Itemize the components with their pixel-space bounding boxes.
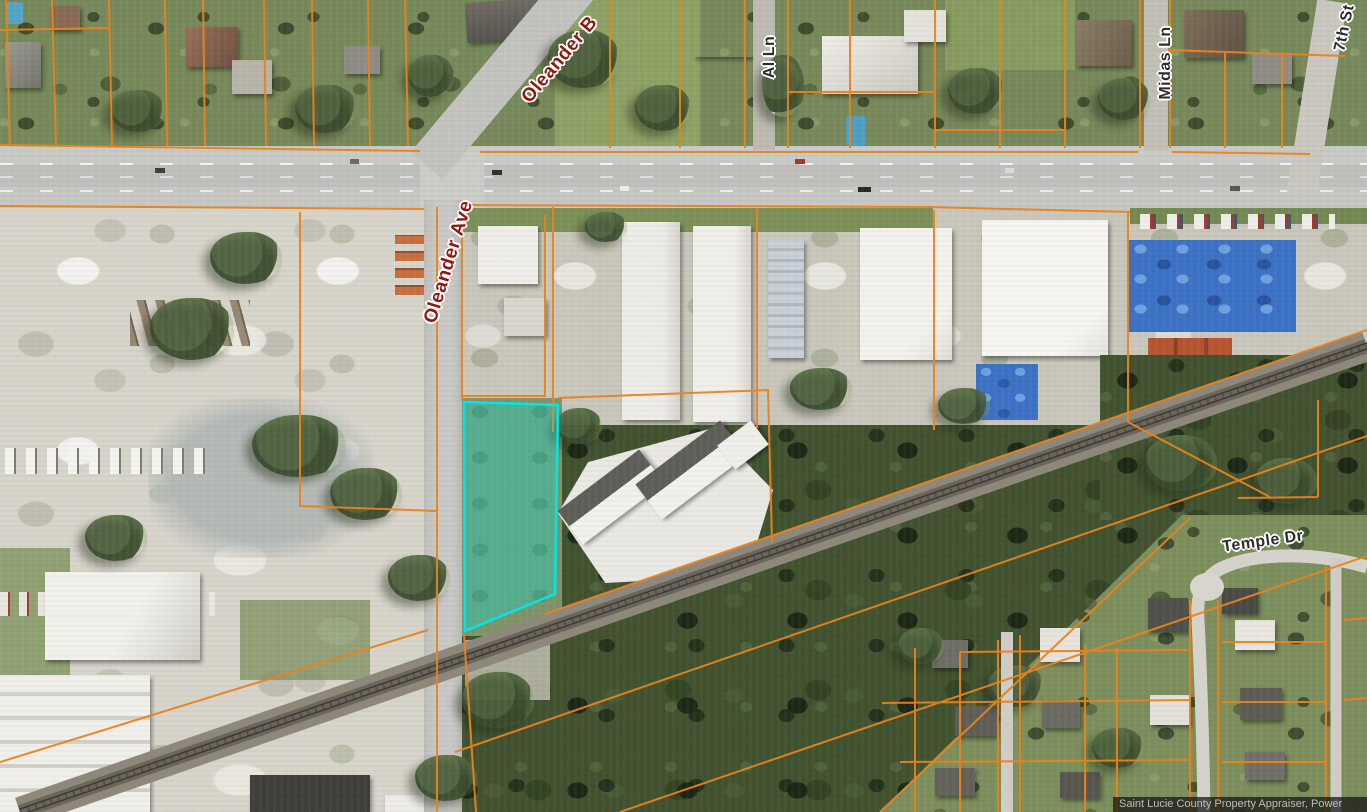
tree-cluster — [210, 232, 282, 284]
warehouse-building — [622, 222, 680, 420]
vehicle — [492, 170, 502, 175]
warehouse-building — [768, 240, 804, 358]
house — [186, 27, 238, 67]
tree-cluster — [408, 55, 454, 97]
tree-cluster — [938, 388, 990, 424]
tree-cluster — [415, 755, 477, 801]
vehicle — [155, 168, 165, 173]
vehicle — [350, 159, 359, 164]
street-label-midas-ln: Midas Ln — [1157, 26, 1175, 99]
house — [935, 768, 975, 796]
house — [1184, 10, 1244, 58]
house — [1076, 20, 1132, 66]
tree-cluster — [556, 408, 602, 444]
tree-cluster — [585, 212, 627, 242]
building — [250, 775, 370, 812]
map-attribution: Saint Lucie County Property Appraiser, P… — [1113, 797, 1367, 812]
tree-cluster — [635, 85, 691, 131]
house — [1042, 700, 1080, 728]
lane-marking — [0, 176, 1367, 178]
warehouse-building — [478, 226, 538, 284]
tree-cluster — [948, 68, 1004, 114]
vehicle — [620, 186, 629, 191]
tree-cluster — [150, 298, 234, 360]
building — [0, 675, 150, 812]
tree-cluster — [1092, 728, 1144, 768]
tree-cluster — [1255, 458, 1317, 504]
forest — [1100, 355, 1367, 520]
blue-pallet-stacks — [1128, 240, 1296, 332]
house — [344, 46, 380, 74]
tree-cluster — [330, 468, 402, 520]
house — [1150, 695, 1190, 725]
house — [1252, 54, 1292, 84]
tree-cluster — [790, 368, 852, 410]
house — [5, 42, 41, 88]
lawn — [945, 0, 1075, 70]
house — [50, 6, 80, 30]
building — [45, 572, 200, 660]
tree-cluster — [1098, 78, 1150, 120]
house — [1245, 752, 1285, 780]
vehicle — [1230, 186, 1240, 191]
lane-marking — [0, 190, 1367, 192]
warehouse-building — [982, 220, 1108, 356]
truck-row — [1140, 214, 1335, 229]
vehicle — [1005, 168, 1014, 173]
house — [1240, 688, 1282, 720]
house — [904, 10, 946, 42]
tree-cluster — [252, 415, 346, 477]
tree-cluster — [295, 85, 357, 133]
tree-cluster — [388, 555, 450, 601]
vehicle — [795, 159, 805, 164]
house — [955, 706, 997, 736]
aerial-map[interactable]: Oleander B Oleander Ave Al Ln Midas Ln 7… — [0, 0, 1367, 812]
trailer-row — [5, 448, 210, 474]
house — [1235, 620, 1275, 650]
house — [1060, 772, 1100, 798]
street-label-al-ln: Al Ln — [761, 36, 779, 79]
swimming-pool — [6, 2, 23, 24]
building — [504, 298, 546, 336]
tree-cluster — [110, 90, 165, 132]
warehouse-building — [693, 226, 751, 422]
swimming-pool — [846, 116, 866, 146]
tree-cluster — [1145, 435, 1217, 491]
lane-marking — [0, 163, 1367, 165]
warehouse-building — [860, 228, 952, 360]
house — [232, 60, 272, 94]
tree-cluster — [85, 515, 147, 561]
highlighted-parcel[interactable] — [464, 402, 558, 631]
house — [822, 36, 918, 94]
house — [1148, 598, 1188, 632]
grass-patch — [240, 600, 370, 680]
tree-cluster — [988, 665, 1044, 707]
house — [1222, 588, 1258, 614]
tree-cluster — [898, 628, 944, 664]
building — [385, 795, 425, 812]
tree-cluster — [462, 672, 534, 728]
house — [1040, 628, 1080, 662]
vehicle — [858, 187, 871, 192]
